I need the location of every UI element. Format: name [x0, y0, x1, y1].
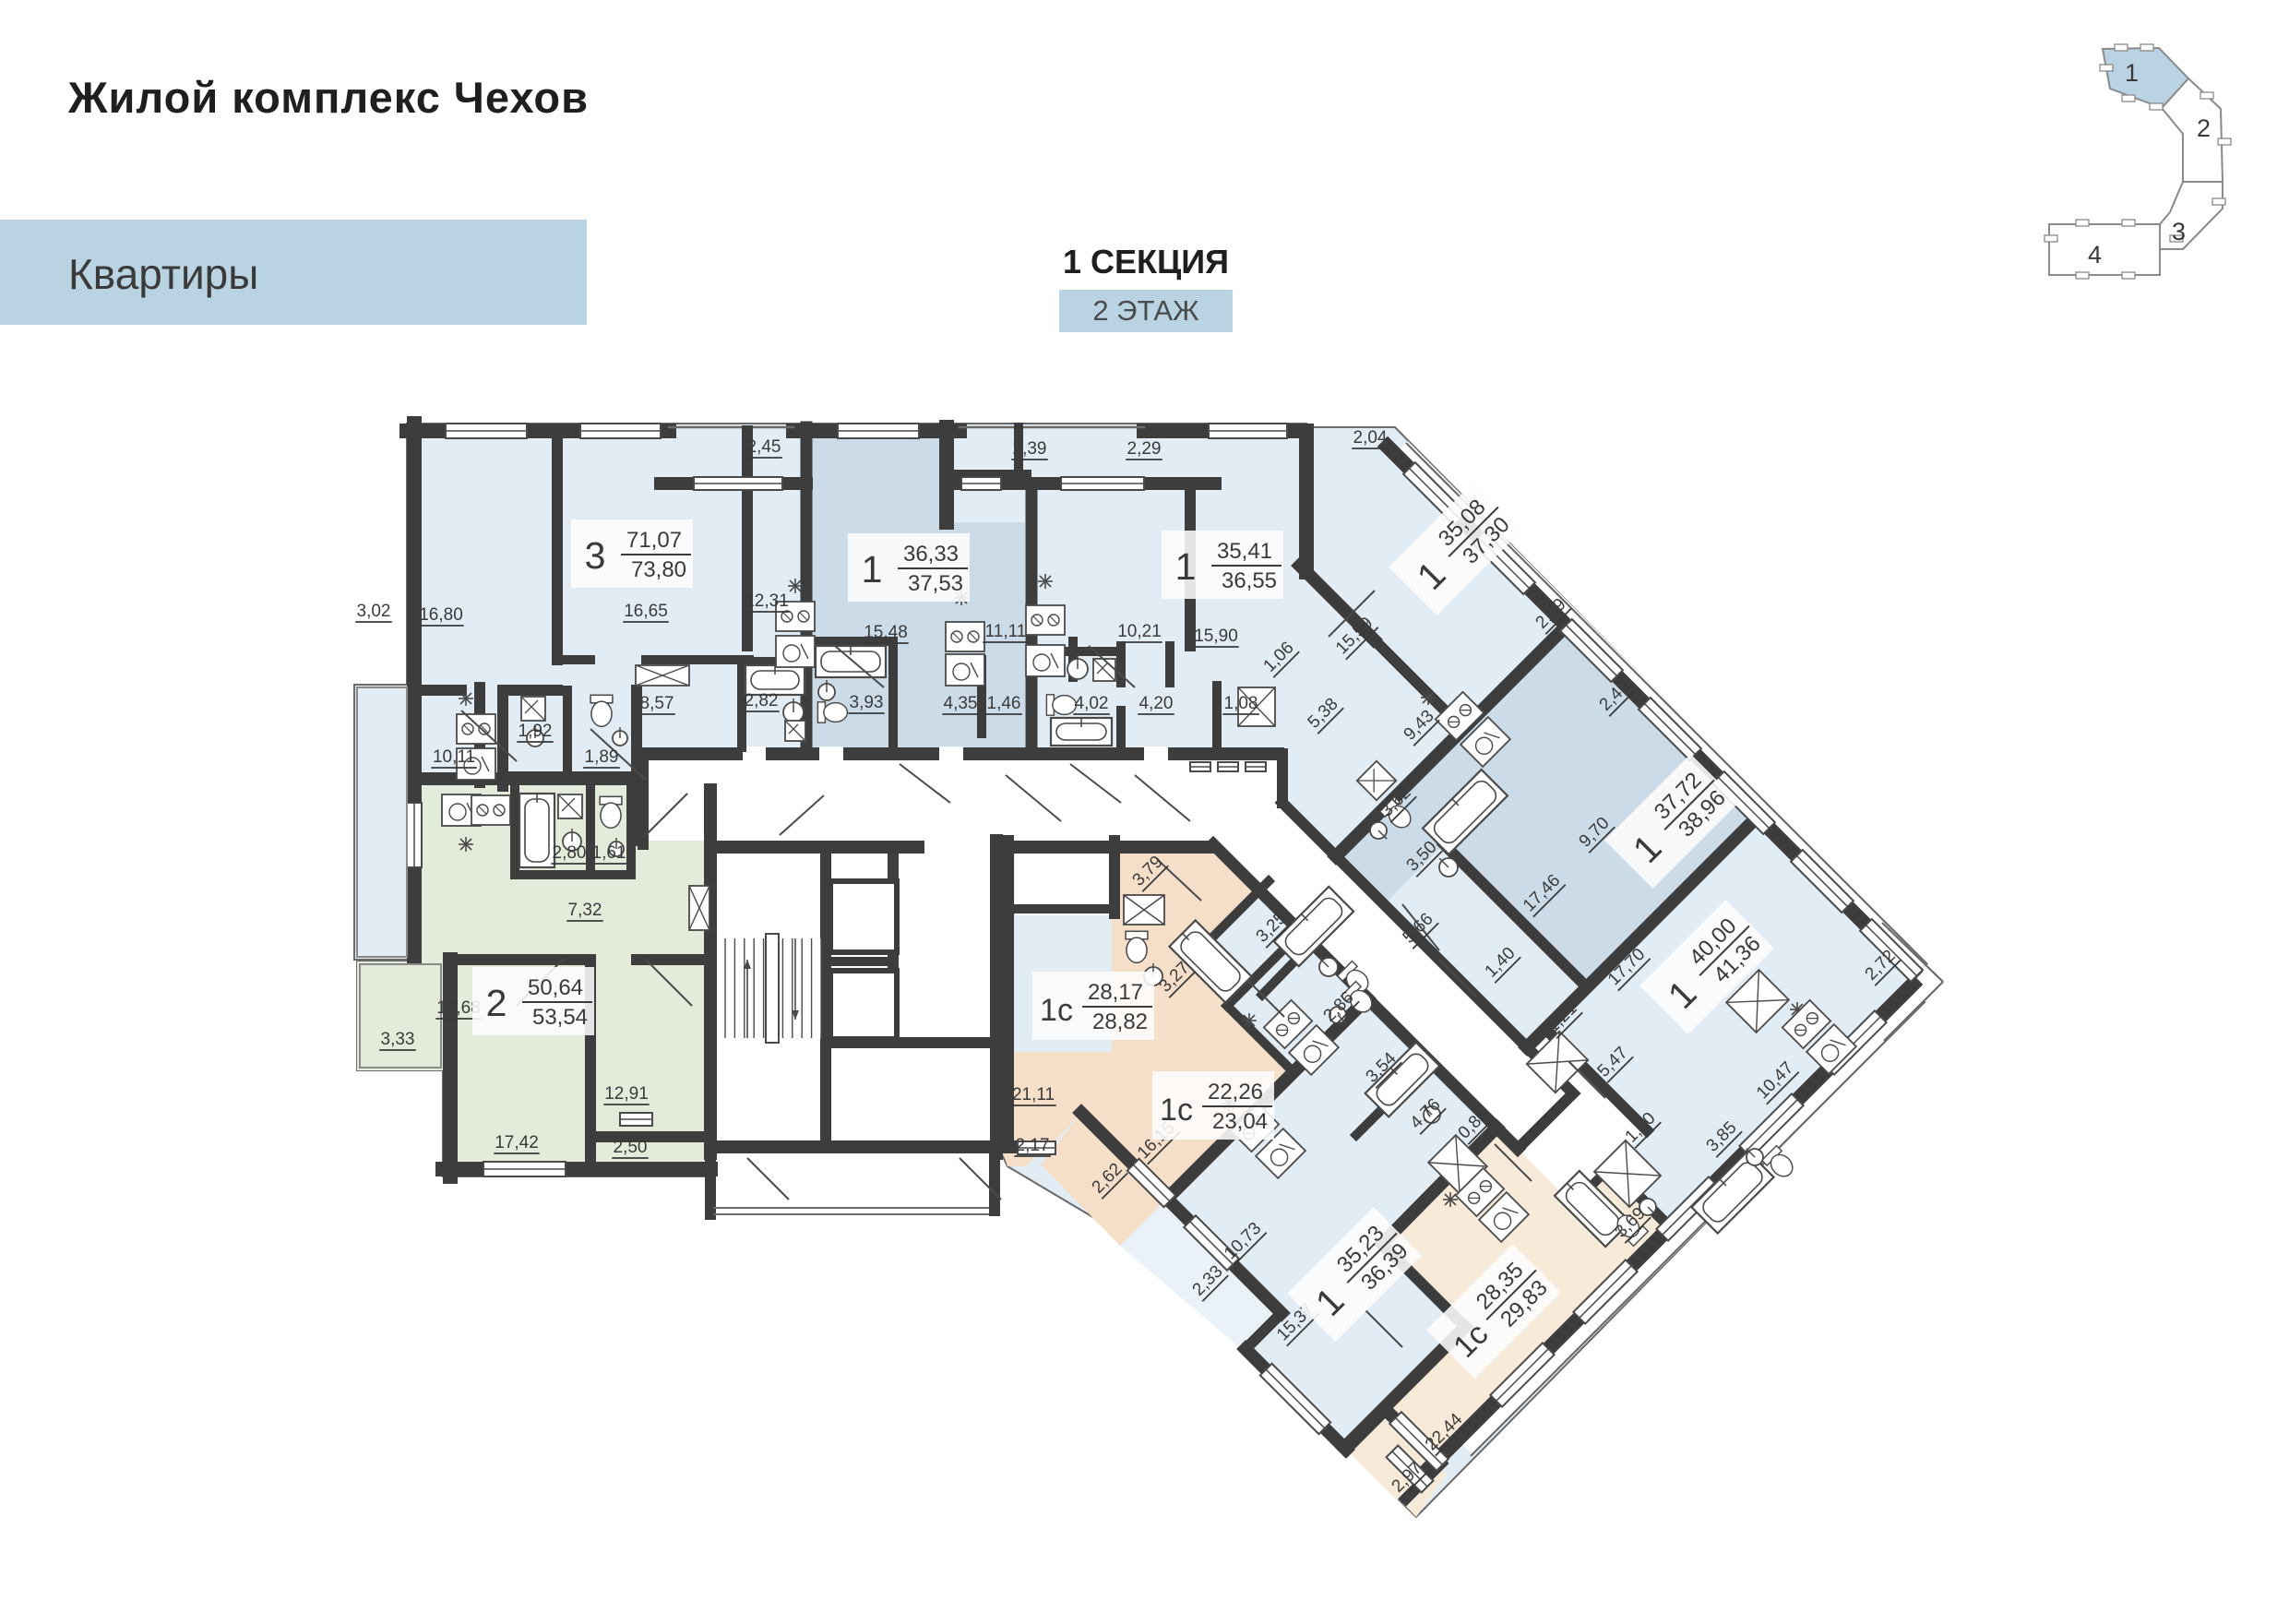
- svg-text:8,57: 8,57: [640, 694, 674, 713]
- svg-text:1,08: 1,08: [1224, 694, 1258, 713]
- svg-text:2,39: 2,39: [1013, 439, 1047, 459]
- svg-text:16,80: 16,80: [419, 605, 463, 625]
- svg-text:36,55: 36,55: [1222, 568, 1277, 593]
- svg-text:2 ЭТАЖ: 2 ЭТАЖ: [1092, 294, 1199, 327]
- svg-text:4,20: 4,20: [1139, 694, 1174, 713]
- svg-text:71,07: 71,07: [626, 528, 682, 553]
- svg-text:22,26: 22,26: [1208, 1080, 1263, 1105]
- svg-text:2,50: 2,50: [614, 1138, 648, 1157]
- svg-text:4,35: 4,35: [944, 694, 978, 713]
- svg-text:2,80: 2,80: [553, 843, 587, 863]
- svg-text:2,17: 2,17: [1016, 1136, 1050, 1155]
- svg-text:1,89: 1,89: [585, 747, 619, 767]
- svg-text:2,45: 2,45: [747, 437, 781, 457]
- svg-text:36,33: 36,33: [903, 542, 959, 567]
- svg-text:1: 1: [1175, 545, 1197, 588]
- svg-text:2,82: 2,82: [745, 691, 779, 710]
- svg-text:1: 1: [2125, 59, 2139, 87]
- svg-text:28,82: 28,82: [1092, 1009, 1148, 1034]
- svg-text:1с: 1с: [1160, 1093, 1193, 1128]
- svg-text:10,21: 10,21: [1117, 622, 1162, 641]
- svg-text:23,04: 23,04: [1212, 1109, 1268, 1134]
- svg-text:2: 2: [2197, 114, 2211, 142]
- svg-text:15,48: 15,48: [864, 623, 908, 642]
- svg-text:2,29: 2,29: [1127, 439, 1162, 459]
- svg-text:35,41: 35,41: [1217, 539, 1272, 564]
- svg-text:1,61: 1,61: [592, 843, 626, 863]
- svg-text:50,64: 50,64: [528, 975, 583, 1000]
- svg-text:3: 3: [585, 534, 606, 577]
- svg-text:2: 2: [486, 982, 507, 1024]
- svg-text:17,42: 17,42: [495, 1133, 539, 1152]
- svg-text:1с: 1с: [1040, 993, 1073, 1028]
- svg-text:10,11: 10,11: [433, 747, 475, 767]
- svg-text:3,02: 3,02: [357, 602, 391, 621]
- svg-text:37,53: 37,53: [908, 571, 963, 596]
- svg-text:1,92: 1,92: [519, 722, 553, 741]
- svg-text:15,90: 15,90: [1194, 627, 1238, 646]
- svg-text:4,02: 4,02: [1075, 694, 1109, 713]
- svg-text:7,32: 7,32: [568, 901, 602, 920]
- svg-text:21,11: 21,11: [1012, 1085, 1055, 1105]
- svg-text:12,31: 12,31: [745, 591, 789, 611]
- svg-text:12,91: 12,91: [604, 1084, 649, 1104]
- svg-text:28,17: 28,17: [1088, 980, 1143, 1005]
- svg-text:1,46: 1,46: [987, 694, 1021, 713]
- svg-text:1: 1: [862, 548, 883, 591]
- svg-text:3,33: 3,33: [381, 1030, 415, 1049]
- svg-text:16,65: 16,65: [624, 602, 668, 621]
- svg-text:4: 4: [2088, 241, 2102, 269]
- svg-text:Жилой комплекс Чехов: Жилой комплекс Чехов: [67, 73, 589, 122]
- svg-text:53,54: 53,54: [532, 1005, 588, 1030]
- svg-text:3: 3: [2172, 218, 2186, 245]
- svg-text:11,11: 11,11: [985, 622, 1027, 641]
- svg-text:Квартиры: Квартиры: [68, 250, 258, 298]
- svg-text:73,80: 73,80: [631, 557, 686, 582]
- svg-text:2,04: 2,04: [1353, 428, 1388, 448]
- svg-text:1 СЕКЦИЯ: 1 СЕКЦИЯ: [1063, 243, 1229, 281]
- svg-text:3,93: 3,93: [850, 693, 884, 712]
